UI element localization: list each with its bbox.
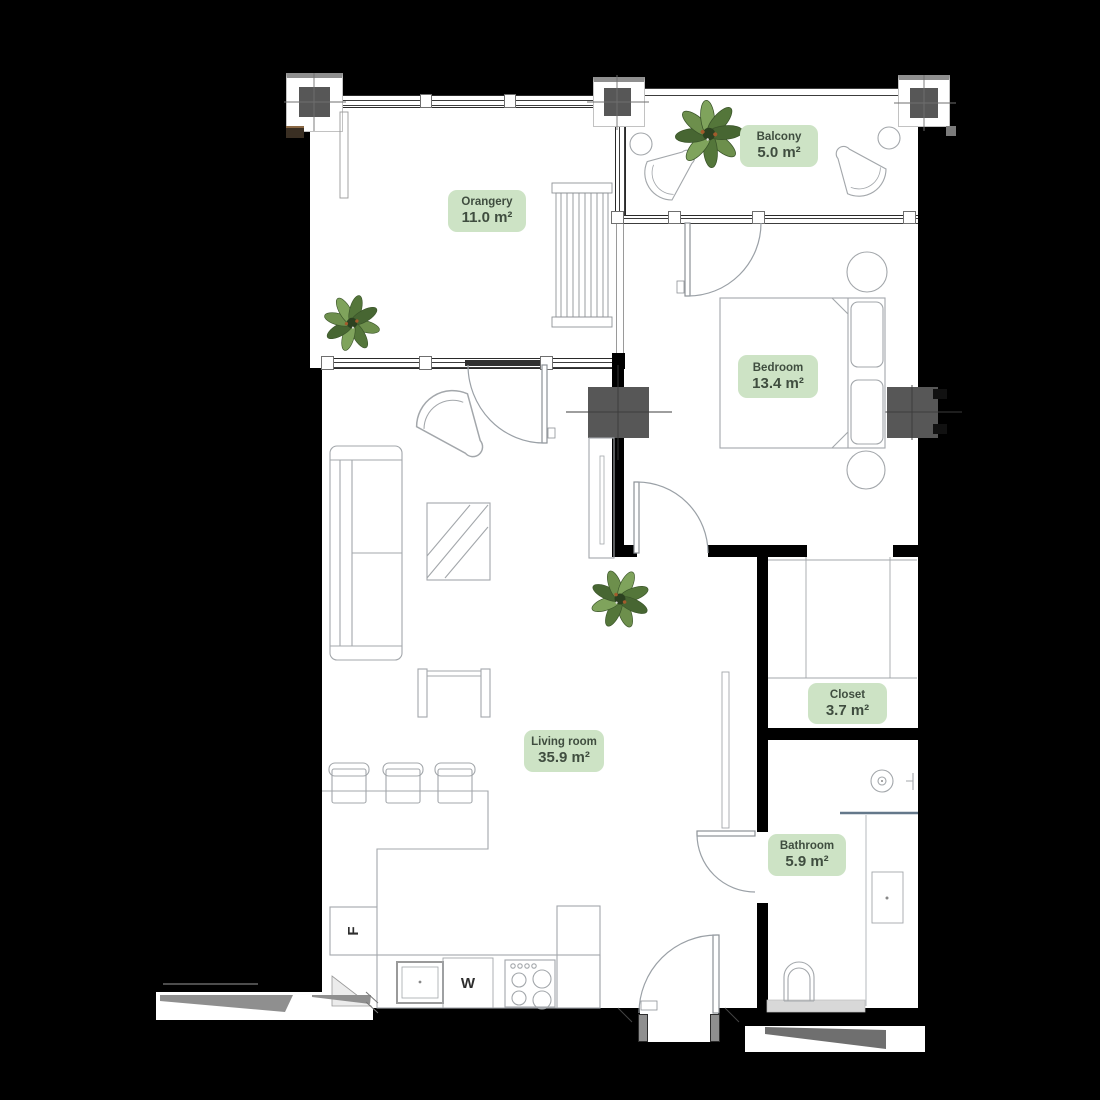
room-label-bathroom: Bathroom 5.9 m² [768,834,846,876]
room-area: 11.0 m² [462,209,513,227]
stove [505,960,555,1009]
room-area: 5.0 m² [757,144,800,162]
side-table [630,133,652,155]
plan-linework [0,0,1100,1100]
room-label-living: Living room 35.9 m² [524,730,604,772]
plant-icon [317,288,386,357]
plant-icon [582,561,658,637]
room-label-orangery: Orangery 11.0 m² [448,190,526,232]
toilet [784,962,814,1001]
room-area: 3.7 m² [826,702,869,720]
wall-chase [340,112,348,198]
armchair [417,391,483,457]
room-label-bedroom: Bedroom 13.4 m² [738,355,818,398]
kitchen [322,763,600,1009]
bath-mat [767,1000,865,1012]
side-table [878,127,900,149]
room-area: 35.9 m² [538,749,590,767]
room-name: Closet [830,688,865,702]
room-name: Living room [531,735,597,749]
door-bathroom [697,831,755,892]
room-area: 5.9 m² [785,853,828,871]
room-name: Balcony [757,130,802,144]
room-name: Orangery [461,195,512,209]
orangery-radiator [552,183,612,327]
column-notches [933,389,947,434]
door-entrance [639,935,719,1013]
console-table-leg [481,669,490,717]
door-balcony-bedroom [677,223,761,296]
door-orangery-living [468,365,555,443]
cabinet-handle [600,456,604,544]
washer-label: W [453,974,483,992]
room-name: Bedroom [753,361,803,375]
door-bedroom [634,482,708,553]
floor-plan: F W Orangery 11.0 m² Balcony 5.0 m² Bedr… [0,0,1100,1100]
room-area: 13.4 m² [752,375,804,393]
bathroom-fixtures [767,770,918,1012]
bedside-table [847,252,887,292]
bar-stools [329,763,475,803]
wall-chase [722,672,729,828]
fridge-label: F [338,916,368,946]
console-table-leg [418,669,427,717]
ramp-shading [160,984,886,1049]
room-name: Bathroom [780,839,834,853]
bar-counter [322,791,488,907]
room-label-closet: Closet 3.7 m² [808,683,887,724]
kitchen-cabinet [557,906,600,1008]
room-label-balcony: Balcony 5.0 m² [740,125,818,167]
faucet [906,773,913,790]
balcony-chair-right [836,146,886,196]
bedside-table [847,451,885,489]
living-furniture [330,391,614,717]
